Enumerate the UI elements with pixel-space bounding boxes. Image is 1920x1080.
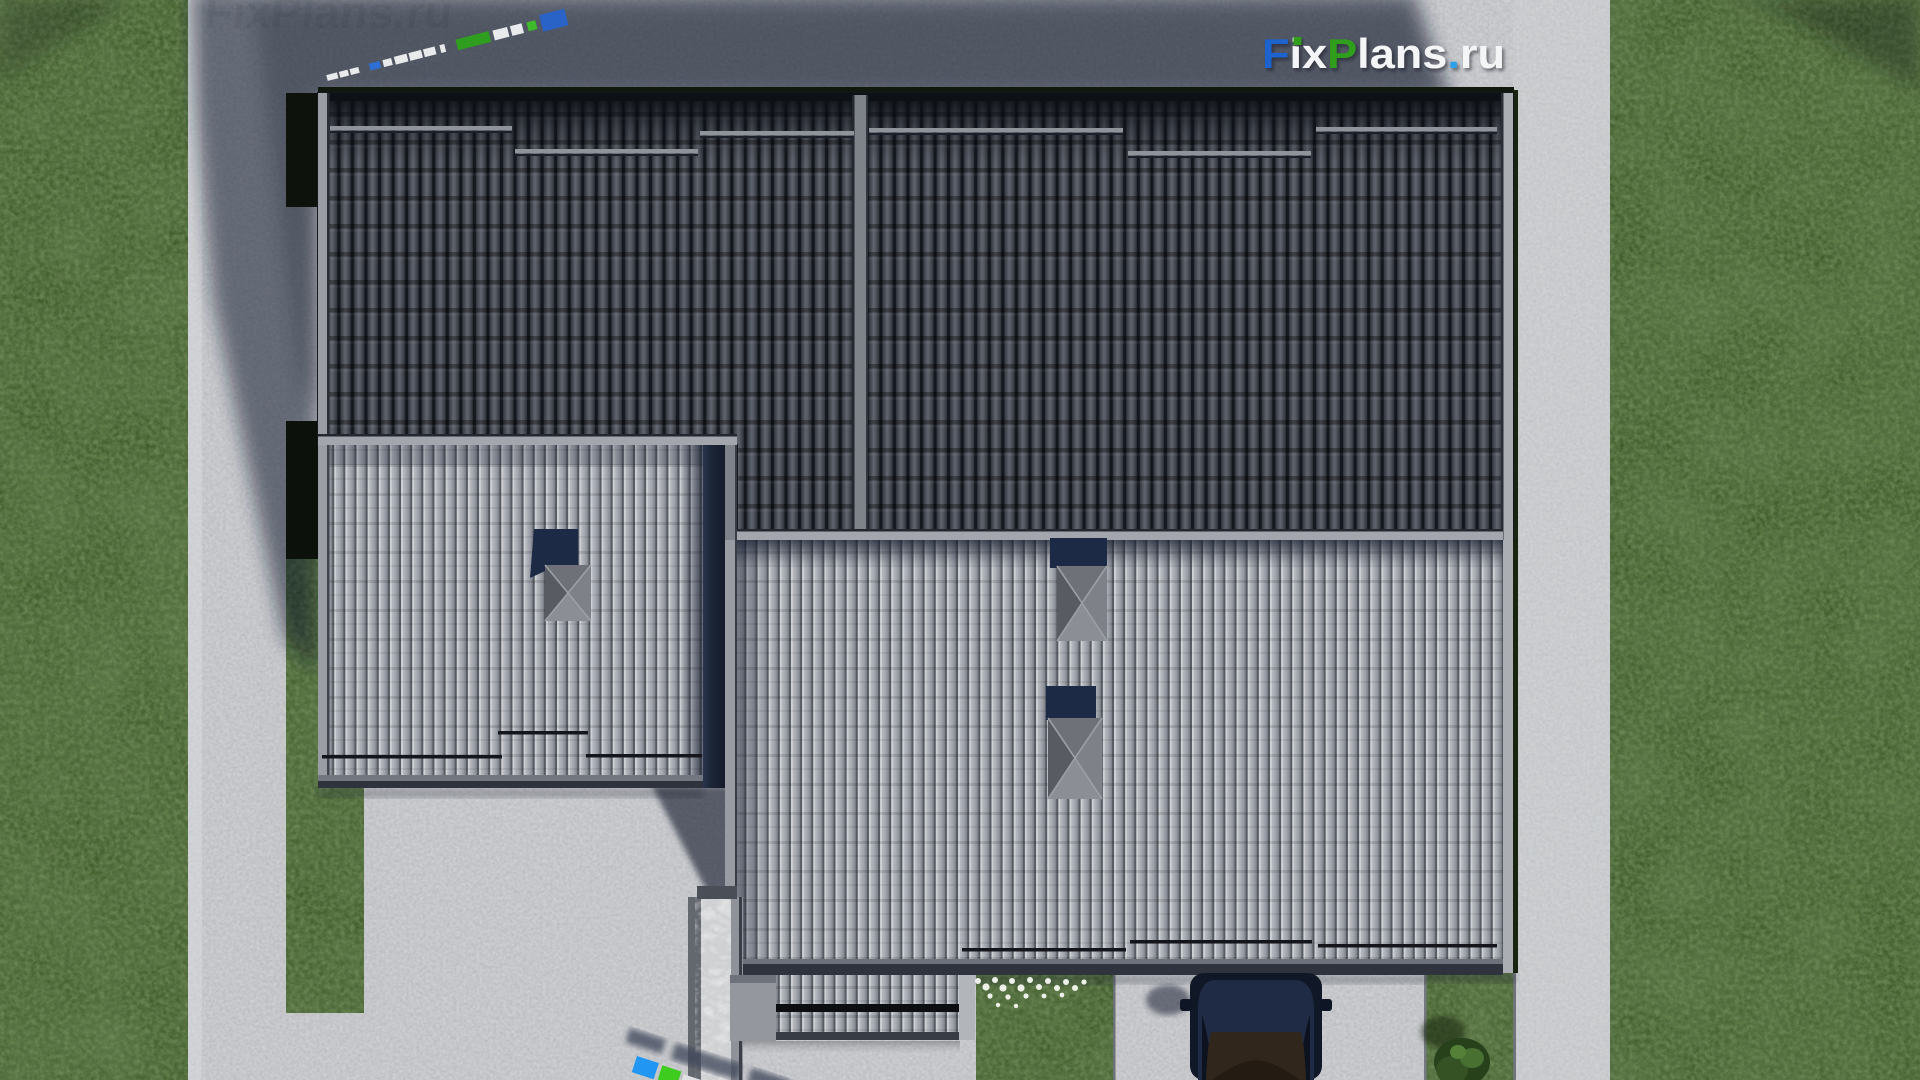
svg-text:FixPlans.ru: FixPlans.ru xyxy=(202,0,455,38)
